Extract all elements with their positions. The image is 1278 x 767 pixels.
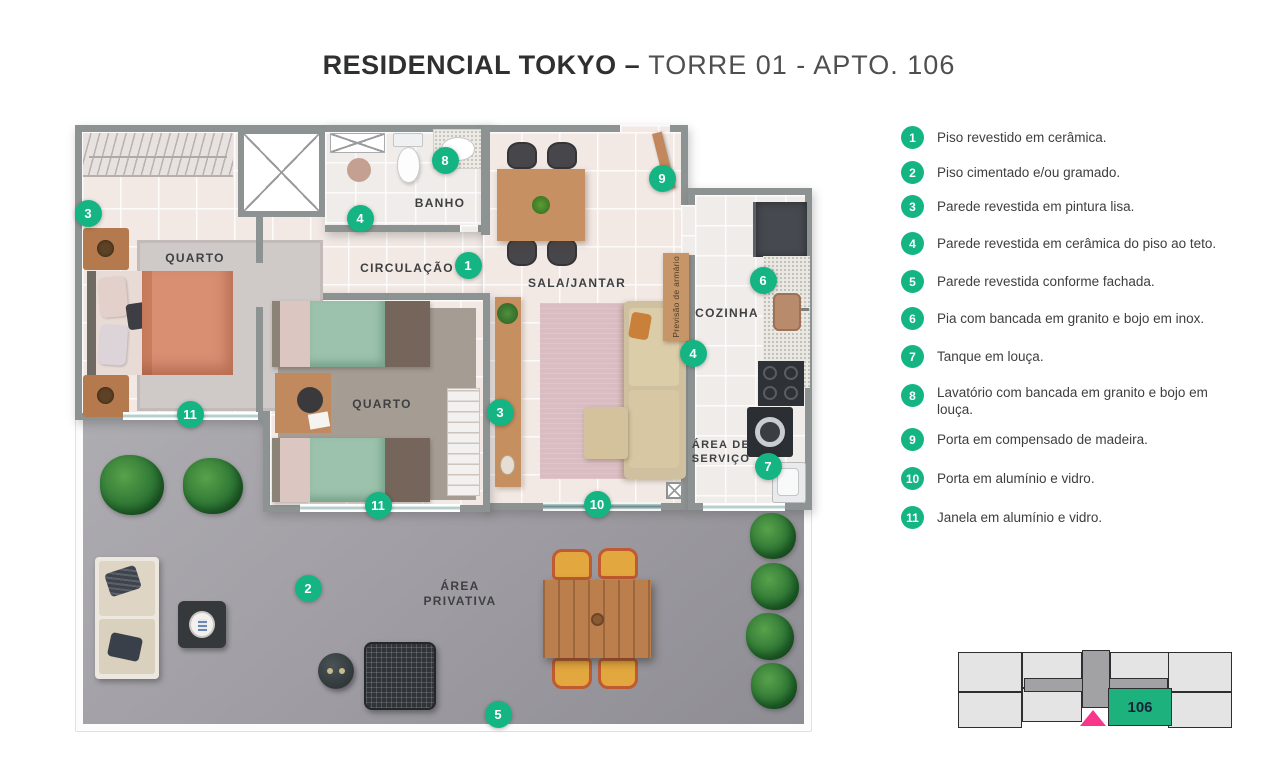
dining-chair [547,239,577,266]
kitchen-sink [773,293,801,331]
desk-chair [297,387,323,413]
legend-badge: 5 [901,270,924,293]
washing-machine [747,407,793,457]
plan-marker-4: 4 [680,340,707,367]
decor-vase [500,455,515,475]
plan-marker-6: 6 [750,267,777,294]
sofa-ottoman [584,407,628,459]
plan-marker-7: 7 [755,453,782,480]
legend-item-9: 9Porta em compensado de madeira. [901,428,1148,451]
nightstand-2 [83,375,129,417]
keyplan-arrow-icon [1080,710,1106,726]
plan-marker-10: 10 [584,491,611,518]
column-marker [666,482,683,499]
legend-text: Piso cimentado e/ou gramado. [937,164,1120,181]
shaft-box [238,128,325,217]
title-project: RESIDENCIAL TOKYO – [323,50,641,80]
bed-headboard [87,271,96,375]
plan-marker-11: 11 [365,492,392,519]
legend-text: Pia com bancada em granito e bojo em ino… [937,310,1204,327]
legend-item-3: 3Parede revestida em pintura lisa. [901,195,1134,218]
plant-bush [100,455,164,515]
legend-item-2: 2Piso cimentado e/ou gramado. [901,161,1120,184]
keyplan-core [1082,650,1110,708]
cabinet-previsao: Previsão de armário [663,253,689,341]
legend-badge: 3 [901,195,924,218]
lamp-icon [97,387,114,404]
legend-badge: 11 [901,506,924,529]
wall-quarto1-upper [256,217,263,263]
pillow-zone [280,301,310,367]
legend-text: Parede revestida em cerâmica do piso ao … [937,235,1216,252]
legend-badge: 2 [901,161,924,184]
plant-icon [497,303,518,324]
pillow [98,324,129,366]
building-keyplan: 106 [956,646,1236,730]
side-table [178,601,226,648]
tray-icon [189,611,215,638]
outdoor-sofa [95,557,159,679]
label-quarto2: QUARTO [352,397,412,411]
legend-text: Piso revestido em cerâmica. [937,129,1107,146]
wardrobe-rail [89,156,227,158]
pouf-button [339,668,345,674]
floor-plan: Previsão de armário QUARTO BANHO CIRCULA… [75,125,812,732]
plant-bush [746,613,794,660]
keyplan-unit-106: 106 [1108,688,1172,726]
keyplan-unit [1022,688,1082,722]
label-cozinha: COZINHA [695,306,759,320]
plan-marker-3: 3 [487,399,514,426]
legend-item-7: 7Tanque em louça. [901,345,1044,368]
faucet-icon [801,308,809,311]
legend-item-10: 10Porta em alumínio e vidro. [901,467,1095,490]
legend-item-4: 4Parede revestida em cerâmica do piso ao… [901,232,1216,255]
plan-marker-11: 11 [177,401,204,428]
nightstand-1 [83,228,129,270]
label-privativa-1: ÁREA [440,579,479,593]
keyplan-unit-106-label: 106 [1127,699,1152,716]
label-banho: BANHO [415,196,466,210]
table-umbrella-hole [591,613,604,626]
dining-chair [507,239,537,266]
fridge [753,202,807,257]
plan-marker-5: 5 [485,701,512,728]
legend-text: Tanque em louça. [937,348,1044,365]
bed-throw [385,301,430,367]
tray-decor [198,619,207,631]
entry-opening [620,125,670,132]
wardrobe-quarto1 [83,133,233,177]
legend: 1Piso revestido em cerâmica.2Piso ciment… [901,0,1271,560]
dining-chair [547,142,577,169]
lamp-icon [97,240,114,257]
plan-marker-4: 4 [347,205,374,232]
kitchen-opening [681,205,695,255]
open-shelf-quarto2 [447,388,480,496]
bath-cabinet [330,133,385,153]
bed-headboard [272,438,280,502]
legend-badge: 6 [901,307,924,330]
legend-badge: 7 [901,345,924,368]
keyplan-unit [958,652,1022,692]
toilet-tank [393,133,423,147]
stove [758,361,804,406]
burner-icon [763,386,777,400]
pouf-button [327,668,333,674]
plan-marker-3: 3 [75,200,102,227]
wall-banho-sala [481,125,490,235]
label-servico-2: SERVIÇO [692,453,750,465]
bed-headboard [272,301,280,367]
outdoor-chair [598,548,638,579]
plan-marker-1: 1 [455,252,482,279]
label-sala: SALA/JANTAR [528,276,626,290]
sofa-cushion [629,390,679,468]
legend-badge: 1 [901,126,924,149]
banho-door-opening [460,225,478,232]
label-privativa-2: PRIVATIVA [423,594,496,608]
legend-item-11: 11Janela em alumínio e vidro. [901,506,1102,529]
outdoor-table [543,580,651,658]
window-servico [703,503,785,511]
legend-badge: 10 [901,467,924,490]
legend-badge: 9 [901,428,924,451]
washer-drum-icon [755,417,785,447]
pillow [97,276,128,318]
legend-badge: 4 [901,232,924,255]
burner-icon [763,366,777,380]
legend-text: Porta em alumínio e vidro. [937,470,1095,487]
legend-text: Parede revestida em pintura lisa. [937,198,1134,215]
bath-rug [347,158,371,182]
dining-table [497,169,585,241]
bed-double [87,271,233,375]
plant-bush [751,563,799,610]
outdoor-chair [552,658,592,689]
mesh-basket-chair [364,642,436,710]
burner-icon [784,366,798,380]
legend-text: Lavatório com bancada em granito e bojo … [937,384,1229,418]
pillow-zone [280,438,310,502]
keyplan-unit [1168,692,1232,728]
toilet-bowl [397,147,420,183]
plant-bush [183,458,243,514]
bed-twin-2 [272,438,430,502]
bed-blanket [142,271,233,375]
cabinet-previsao-label: Previsão de armário [671,256,681,338]
legend-badge: 8 [901,384,924,407]
bed-throw [385,438,430,502]
pouf [318,653,354,689]
burner-icon [784,386,798,400]
bed-blanket-green [310,301,385,367]
legend-item-1: 1Piso revestido em cerâmica. [901,126,1107,149]
legend-item-8: 8Lavatório com bancada em granito e bojo… [901,384,1229,418]
plant-centerpiece-icon [532,196,550,214]
plan-marker-9: 9 [649,165,676,192]
plant-bush [751,663,797,709]
dining-chair [507,142,537,169]
plant-bush [750,513,796,559]
label-servico-1: ÁREA DE [692,439,750,451]
label-quarto1: QUARTO [165,251,225,265]
legend-text: Parede revestida conforme fachada. [937,273,1155,290]
sideboard [495,297,521,487]
bed-twin-1 [272,301,430,367]
keyplan-unit [958,692,1022,728]
label-circulacao: CIRCULAÇÃO [360,261,454,275]
legend-item-5: 5Parede revestida conforme fachada. [901,270,1155,293]
plan-marker-2: 2 [295,575,322,602]
wall-quarto1-lower [256,307,263,420]
desk-quarto2 [275,373,331,433]
keyplan-unit [1168,652,1232,692]
legend-item-6: 6Pia com bancada em granito e bojo em in… [901,307,1204,330]
legend-text: Janela em alumínio e vidro. [937,509,1102,526]
plan-marker-8: 8 [432,147,459,174]
desk-paper [308,411,330,429]
legend-text: Porta em compensado de madeira. [937,431,1148,448]
outdoor-chair [552,549,592,580]
outdoor-chair [598,658,638,689]
